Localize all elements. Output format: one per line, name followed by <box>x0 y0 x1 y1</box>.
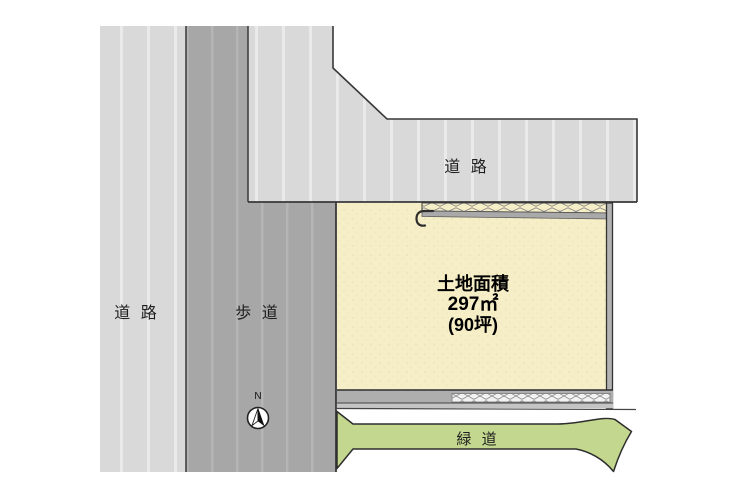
site-plan-canvas: 道 路 道 路 歩 道 緑 道 土地面積 297㎡ (90坪) N <box>0 0 735 500</box>
lower-edge-line <box>337 409 636 410</box>
boundary-band-right <box>607 203 613 408</box>
left-road-texture <box>100 26 186 472</box>
site-plan-drawing <box>0 0 735 500</box>
boundary-hatch-strip-bottom-pattern <box>452 394 610 403</box>
green-way-surface <box>337 412 632 472</box>
land-plot-texture <box>337 203 613 408</box>
north-arrow <box>248 408 269 429</box>
top-road-texture <box>248 26 637 202</box>
boundary-subband-bottom <box>337 403 613 408</box>
